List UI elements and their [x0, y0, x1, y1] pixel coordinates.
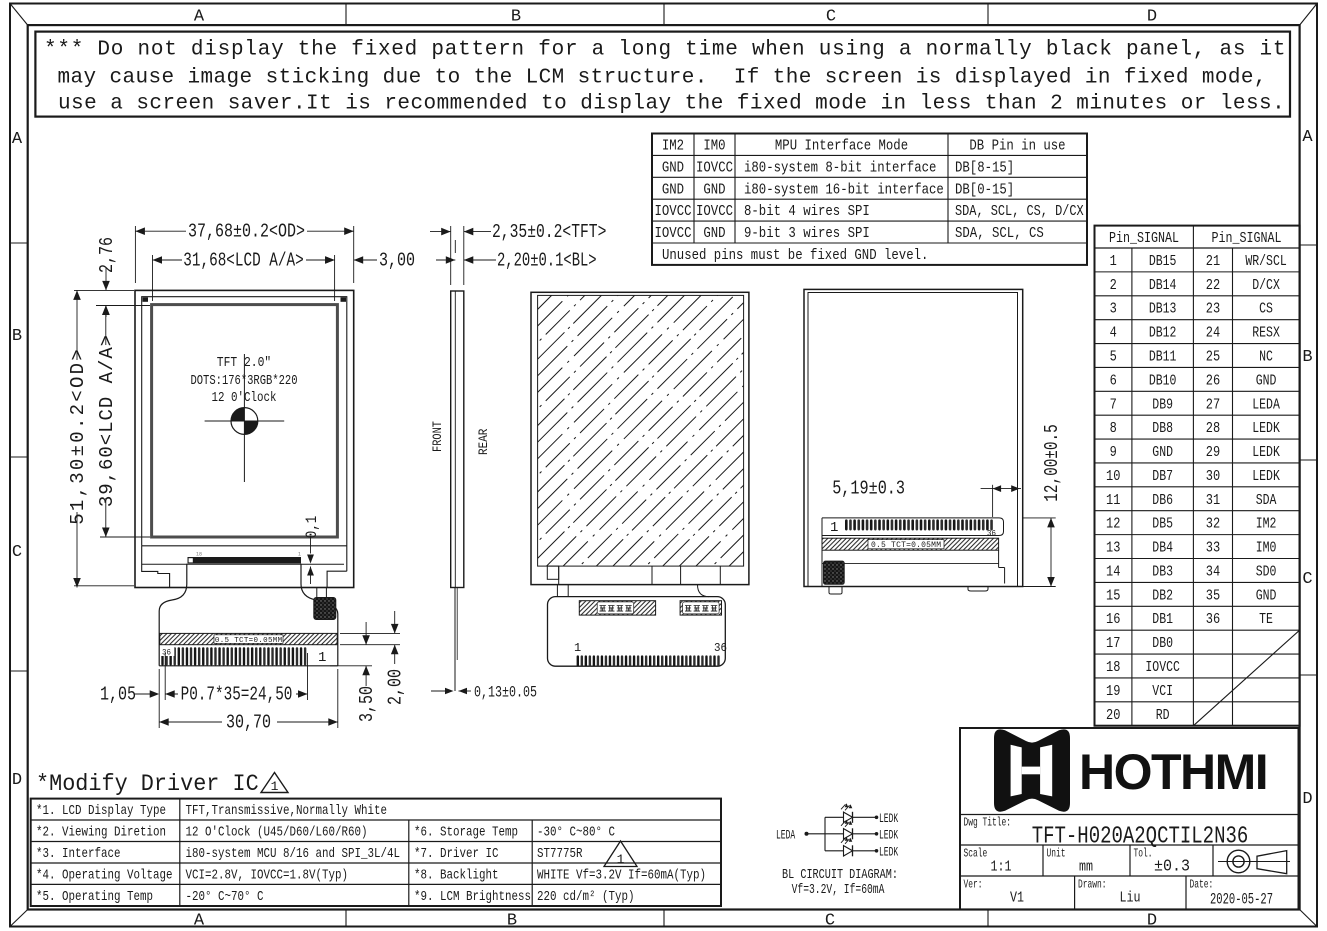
svg-text:17: 17: [1106, 635, 1120, 652]
svg-text:DB6: DB6: [1152, 493, 1173, 509]
svg-text:15: 15: [1106, 587, 1120, 604]
svg-text:29: 29: [1206, 444, 1220, 461]
svg-text:9: 9: [1110, 444, 1117, 461]
svg-text:IM2: IM2: [1256, 517, 1277, 533]
svg-text:1:1: 1:1: [991, 859, 1012, 876]
svg-text:31,68<LCD A/A>: 31,68<LCD A/A>: [183, 249, 303, 271]
svg-text:IOVCC: IOVCC: [696, 159, 733, 176]
svg-text:A: A: [12, 130, 23, 149]
svg-text:C: C: [825, 912, 835, 931]
svg-text:DB12: DB12: [1149, 326, 1177, 342]
svg-text:D: D: [1147, 912, 1157, 931]
svg-text:10: 10: [1106, 468, 1120, 485]
svg-text:0.5 TCT=0.05MM: 0.5 TCT=0.05MM: [215, 637, 283, 645]
svg-text:FRONT: FRONT: [431, 421, 445, 452]
svg-text:36: 36: [714, 641, 727, 655]
svg-text:GND: GND: [703, 225, 725, 242]
svg-text:A: A: [194, 8, 205, 27]
svg-text:32: 32: [1206, 516, 1220, 533]
svg-text:21: 21: [1206, 253, 1220, 270]
svg-text:DB[0-15]: DB[0-15]: [955, 181, 1014, 198]
svg-text:12,00±0.5: 12,00±0.5: [1041, 424, 1063, 501]
svg-text:*3. Interface: *3. Interface: [36, 846, 121, 862]
svg-text:36: 36: [987, 530, 996, 539]
svg-text:36: 36: [162, 649, 171, 658]
svg-text:28: 28: [1206, 420, 1220, 437]
svg-text:LEDK: LEDK: [879, 828, 899, 842]
svg-text:1: 1: [617, 852, 625, 867]
svg-text:REAR: REAR: [477, 428, 491, 455]
svg-text:LEDA: LEDA: [776, 829, 796, 843]
svg-text:DB14: DB14: [1149, 278, 1177, 294]
svg-text:D: D: [12, 771, 22, 790]
svg-text:Unit: Unit: [1047, 847, 1066, 861]
svg-text:5: 5: [1110, 348, 1117, 365]
svg-text:9-bit 3 wires SPI: 9-bit 3 wires SPI: [744, 225, 870, 242]
svg-text:DB1: DB1: [1152, 612, 1173, 628]
svg-text:IOVCC: IOVCC: [1145, 660, 1180, 676]
svg-text:Scale: Scale: [964, 847, 988, 861]
svg-text:LEDK: LEDK: [1252, 469, 1280, 485]
svg-text:2,76: 2,76: [96, 237, 118, 273]
svg-text:DB13: DB13: [1149, 302, 1177, 318]
svg-text:3,00: 3,00: [379, 249, 415, 271]
svg-text:P0.7*35=24,50: P0.7*35=24,50: [181, 684, 293, 706]
svg-text:WR/SCL: WR/SCL: [1245, 254, 1286, 270]
svg-text:*5. Operating Temp: *5. Operating Temp: [36, 889, 153, 905]
svg-text:use a screen saver.It is recom: use a screen saver.It is recommended to …: [58, 93, 1285, 116]
svg-text:35: 35: [1206, 587, 1220, 604]
svg-text:*6. Storage Temp: *6. Storage Temp: [414, 824, 518, 840]
svg-text:NC: NC: [1259, 349, 1273, 365]
svg-text:33: 33: [1206, 540, 1220, 557]
svg-text:DB15: DB15: [1149, 254, 1177, 270]
svg-text:13: 13: [1106, 540, 1120, 557]
svg-text:may cause image sticking due t: may cause image sticking due to the LCM …: [58, 67, 1267, 90]
svg-text:0,13±0.05: 0,13±0.05: [474, 684, 537, 702]
svg-text:GND: GND: [703, 181, 725, 198]
svg-text:0.5 TCT=0.05MM: 0.5 TCT=0.05MM: [871, 541, 941, 550]
svg-text:2020-05-27: 2020-05-27: [1210, 891, 1273, 909]
svg-text:HOTHMI: HOTHMI: [1079, 744, 1269, 800]
svg-text:1: 1: [271, 779, 279, 794]
svg-text:A: A: [194, 912, 205, 931]
svg-text:DB4: DB4: [1152, 541, 1173, 557]
svg-text:DB9: DB9: [1152, 397, 1173, 413]
svg-text:2,35±0.2<TFT>: 2,35±0.2<TFT>: [492, 221, 606, 243]
svg-text:20: 20: [1106, 707, 1120, 724]
svg-text:±0.3: ±0.3: [1154, 858, 1190, 877]
svg-text:i80-system MCU 8/16 and SPI_3L: i80-system MCU 8/16 and SPI_3L/4L: [186, 846, 401, 862]
svg-text:27: 27: [1206, 396, 1220, 413]
svg-text:2,20±0.1<BL>: 2,20±0.1<BL>: [497, 250, 597, 272]
svg-text:IOVCC: IOVCC: [655, 203, 692, 220]
svg-text:DB0: DB0: [1152, 636, 1173, 652]
svg-text:C: C: [826, 8, 836, 27]
svg-text:51,30±0.2<OD>: 51,30±0.2<OD>: [67, 349, 89, 525]
svg-text:1: 1: [830, 520, 838, 536]
svg-text:LEDK: LEDK: [1252, 421, 1280, 437]
svg-text:DB8: DB8: [1152, 421, 1173, 437]
svg-text:14: 14: [1106, 563, 1120, 580]
svg-text:3: 3: [1110, 301, 1117, 318]
svg-text:B: B: [511, 8, 521, 27]
svg-text:22: 22: [1206, 277, 1220, 294]
svg-text:11: 11: [1106, 492, 1120, 509]
svg-text:LEDA: LEDA: [1252, 397, 1280, 413]
svg-text:SDA: SDA: [1256, 493, 1277, 509]
svg-text:Ver:: Ver:: [964, 878, 983, 892]
svg-text:*9. LCM Brightness: *9. LCM Brightness: [414, 889, 531, 905]
svg-text:1: 1: [298, 552, 301, 558]
svg-text:VCI: VCI: [1152, 684, 1173, 700]
svg-text:B: B: [1302, 348, 1312, 367]
svg-text:BL CIRCUIT DIAGRAM:: BL CIRCUIT DIAGRAM:: [782, 868, 898, 883]
svg-text:DB11: DB11: [1149, 349, 1177, 365]
svg-text:1: 1: [1110, 253, 1117, 270]
svg-text:LEDK: LEDK: [1252, 445, 1280, 461]
svg-text:*Modify Driver IC: *Modify Driver IC: [36, 771, 259, 797]
svg-text:C: C: [1302, 570, 1312, 589]
svg-text:37,68±0.2<OD>: 37,68±0.2<OD>: [188, 221, 305, 243]
svg-text:DB10: DB10: [1149, 373, 1177, 389]
svg-text:34: 34: [1206, 563, 1220, 580]
svg-text:Vf=3.2V, If=60mA: Vf=3.2V, If=60mA: [792, 883, 885, 898]
svg-text:GND: GND: [662, 159, 684, 176]
svg-text:-30° C~80° C: -30° C~80° C: [537, 824, 615, 840]
svg-text:i80-system 8-bit interface: i80-system 8-bit interface: [744, 159, 936, 176]
svg-text:30: 30: [1206, 468, 1220, 485]
svg-text:*8. Backlight: *8. Backlight: [414, 867, 499, 883]
svg-text:RESX: RESX: [1252, 326, 1280, 342]
svg-text:IM0: IM0: [703, 138, 725, 155]
svg-text:V1: V1: [1010, 890, 1024, 907]
svg-text:39,60<LCD A/A>: 39,60<LCD A/A>: [96, 335, 118, 507]
svg-text:18: 18: [196, 552, 202, 558]
svg-text:*4. Operating Voltage: *4. Operating Voltage: [36, 867, 173, 883]
svg-text:12 O'Clock (U45/D60/L60/R60): 12 O'Clock (U45/D60/L60/R60): [186, 824, 368, 840]
svg-text:*7. Driver IC: *7. Driver IC: [414, 846, 499, 862]
svg-text:MPU Interface Mode: MPU Interface Mode: [775, 138, 908, 155]
svg-text:8-bit 4 wires SPI: 8-bit 4 wires SPI: [744, 203, 870, 220]
svg-text:19: 19: [1106, 683, 1120, 700]
svg-text:DB Pin in use: DB Pin in use: [969, 138, 1065, 155]
svg-text:220 cd/m² (Typ): 220 cd/m² (Typ): [537, 889, 635, 905]
svg-text:18: 18: [1106, 659, 1120, 676]
svg-text:4: 4: [1110, 325, 1117, 342]
svg-text:GND: GND: [662, 181, 684, 198]
svg-text:IOVCC: IOVCC: [655, 225, 692, 242]
svg-text:TE: TE: [1259, 612, 1273, 628]
svg-text:6: 6: [1110, 372, 1117, 389]
svg-text:IM0: IM0: [1256, 541, 1277, 557]
svg-text:IOVCC: IOVCC: [696, 203, 733, 220]
svg-text:mm: mm: [1079, 859, 1093, 876]
svg-text:Pin_SIGNAL: Pin_SIGNAL: [1212, 230, 1282, 247]
svg-text:D: D: [1302, 790, 1312, 809]
svg-text:Dwg Title:: Dwg Title:: [964, 816, 1012, 830]
svg-text:23: 23: [1206, 301, 1220, 318]
svg-text:7: 7: [1110, 396, 1117, 413]
svg-text:8: 8: [1110, 420, 1117, 437]
svg-text:SDA, SCL, CS: SDA, SCL, CS: [955, 225, 1044, 242]
svg-text:3,50: 3,50: [356, 686, 378, 722]
svg-text:*2. Viewing Diretion: *2. Viewing Diretion: [36, 824, 166, 840]
svg-text:A: A: [1302, 128, 1313, 147]
svg-text:DB7: DB7: [1152, 469, 1173, 485]
svg-text:LEDK: LEDK: [879, 812, 899, 826]
svg-text:0,1: 0,1: [303, 516, 321, 539]
svg-text:IM2: IM2: [662, 138, 684, 155]
svg-text:B: B: [507, 912, 517, 931]
svg-text:24: 24: [1206, 325, 1220, 342]
svg-text:-20° C~70° C: -20° C~70° C: [186, 889, 264, 905]
svg-text:Date:: Date:: [1190, 878, 1214, 892]
svg-text:SDA, SCL, CS, D/CX: SDA, SCL, CS, D/CX: [955, 203, 1084, 220]
svg-text:Tol.: Tol.: [1134, 847, 1153, 861]
svg-text:16: 16: [1106, 611, 1120, 628]
svg-text:12: 12: [1106, 516, 1120, 533]
svg-text:VCI=2.8V, IOVCC=1.8V(Typ): VCI=2.8V, IOVCC=1.8V(Typ): [186, 867, 349, 883]
svg-text:RD: RD: [1156, 708, 1170, 724]
svg-text:C: C: [12, 543, 22, 562]
svg-text:D/CX: D/CX: [1252, 278, 1280, 294]
svg-text:TFT,Transmissive,Normally Whit: TFT,Transmissive,Normally White: [186, 803, 388, 819]
svg-text:SD0: SD0: [1256, 564, 1277, 580]
svg-text:DB2: DB2: [1152, 588, 1173, 604]
svg-text:LEDK: LEDK: [879, 845, 899, 859]
svg-text:30,70: 30,70: [226, 712, 271, 734]
svg-text:26: 26: [1206, 372, 1220, 389]
svg-text:WHITE Vf=3.2V If=60mA(Typ): WHITE Vf=3.2V If=60mA(Typ): [537, 867, 706, 883]
svg-text:1: 1: [574, 641, 581, 655]
svg-text:25: 25: [1206, 348, 1220, 365]
svg-text:*** Do not display the fixed p: *** Do not display the fixed pattern for…: [44, 39, 1286, 62]
svg-text:CS: CS: [1259, 302, 1273, 318]
svg-text:i80-system 16-bit interface: i80-system 16-bit interface: [744, 181, 944, 198]
svg-text:DB[8-15]: DB[8-15]: [955, 159, 1014, 176]
svg-text:GND: GND: [1256, 588, 1277, 604]
svg-text:5,19±0.3: 5,19±0.3: [832, 478, 905, 500]
svg-text:D: D: [1147, 8, 1157, 27]
svg-text:B: B: [12, 327, 22, 346]
svg-text:Liu: Liu: [1120, 890, 1141, 907]
svg-text:*1. LCD Display Type: *1. LCD Display Type: [36, 803, 166, 819]
svg-text:GND: GND: [1152, 445, 1173, 461]
svg-text:DB5: DB5: [1152, 517, 1173, 533]
svg-text:1: 1: [318, 650, 326, 666]
svg-text:1,05: 1,05: [100, 684, 136, 706]
svg-text:ST7775R: ST7775R: [537, 846, 583, 862]
svg-text:Unused pins must be fixed GND: Unused pins must be fixed GND level.: [662, 247, 928, 264]
svg-text:Drawn:: Drawn:: [1078, 878, 1107, 892]
svg-text:DB3: DB3: [1152, 564, 1173, 580]
svg-text:2,00: 2,00: [385, 669, 407, 705]
svg-text:Pin_SIGNAL: Pin_SIGNAL: [1109, 230, 1179, 247]
svg-text:36: 36: [1206, 611, 1220, 628]
svg-text:GND: GND: [1256, 373, 1277, 389]
svg-text:31: 31: [1206, 492, 1220, 509]
svg-text:2: 2: [1110, 277, 1117, 294]
